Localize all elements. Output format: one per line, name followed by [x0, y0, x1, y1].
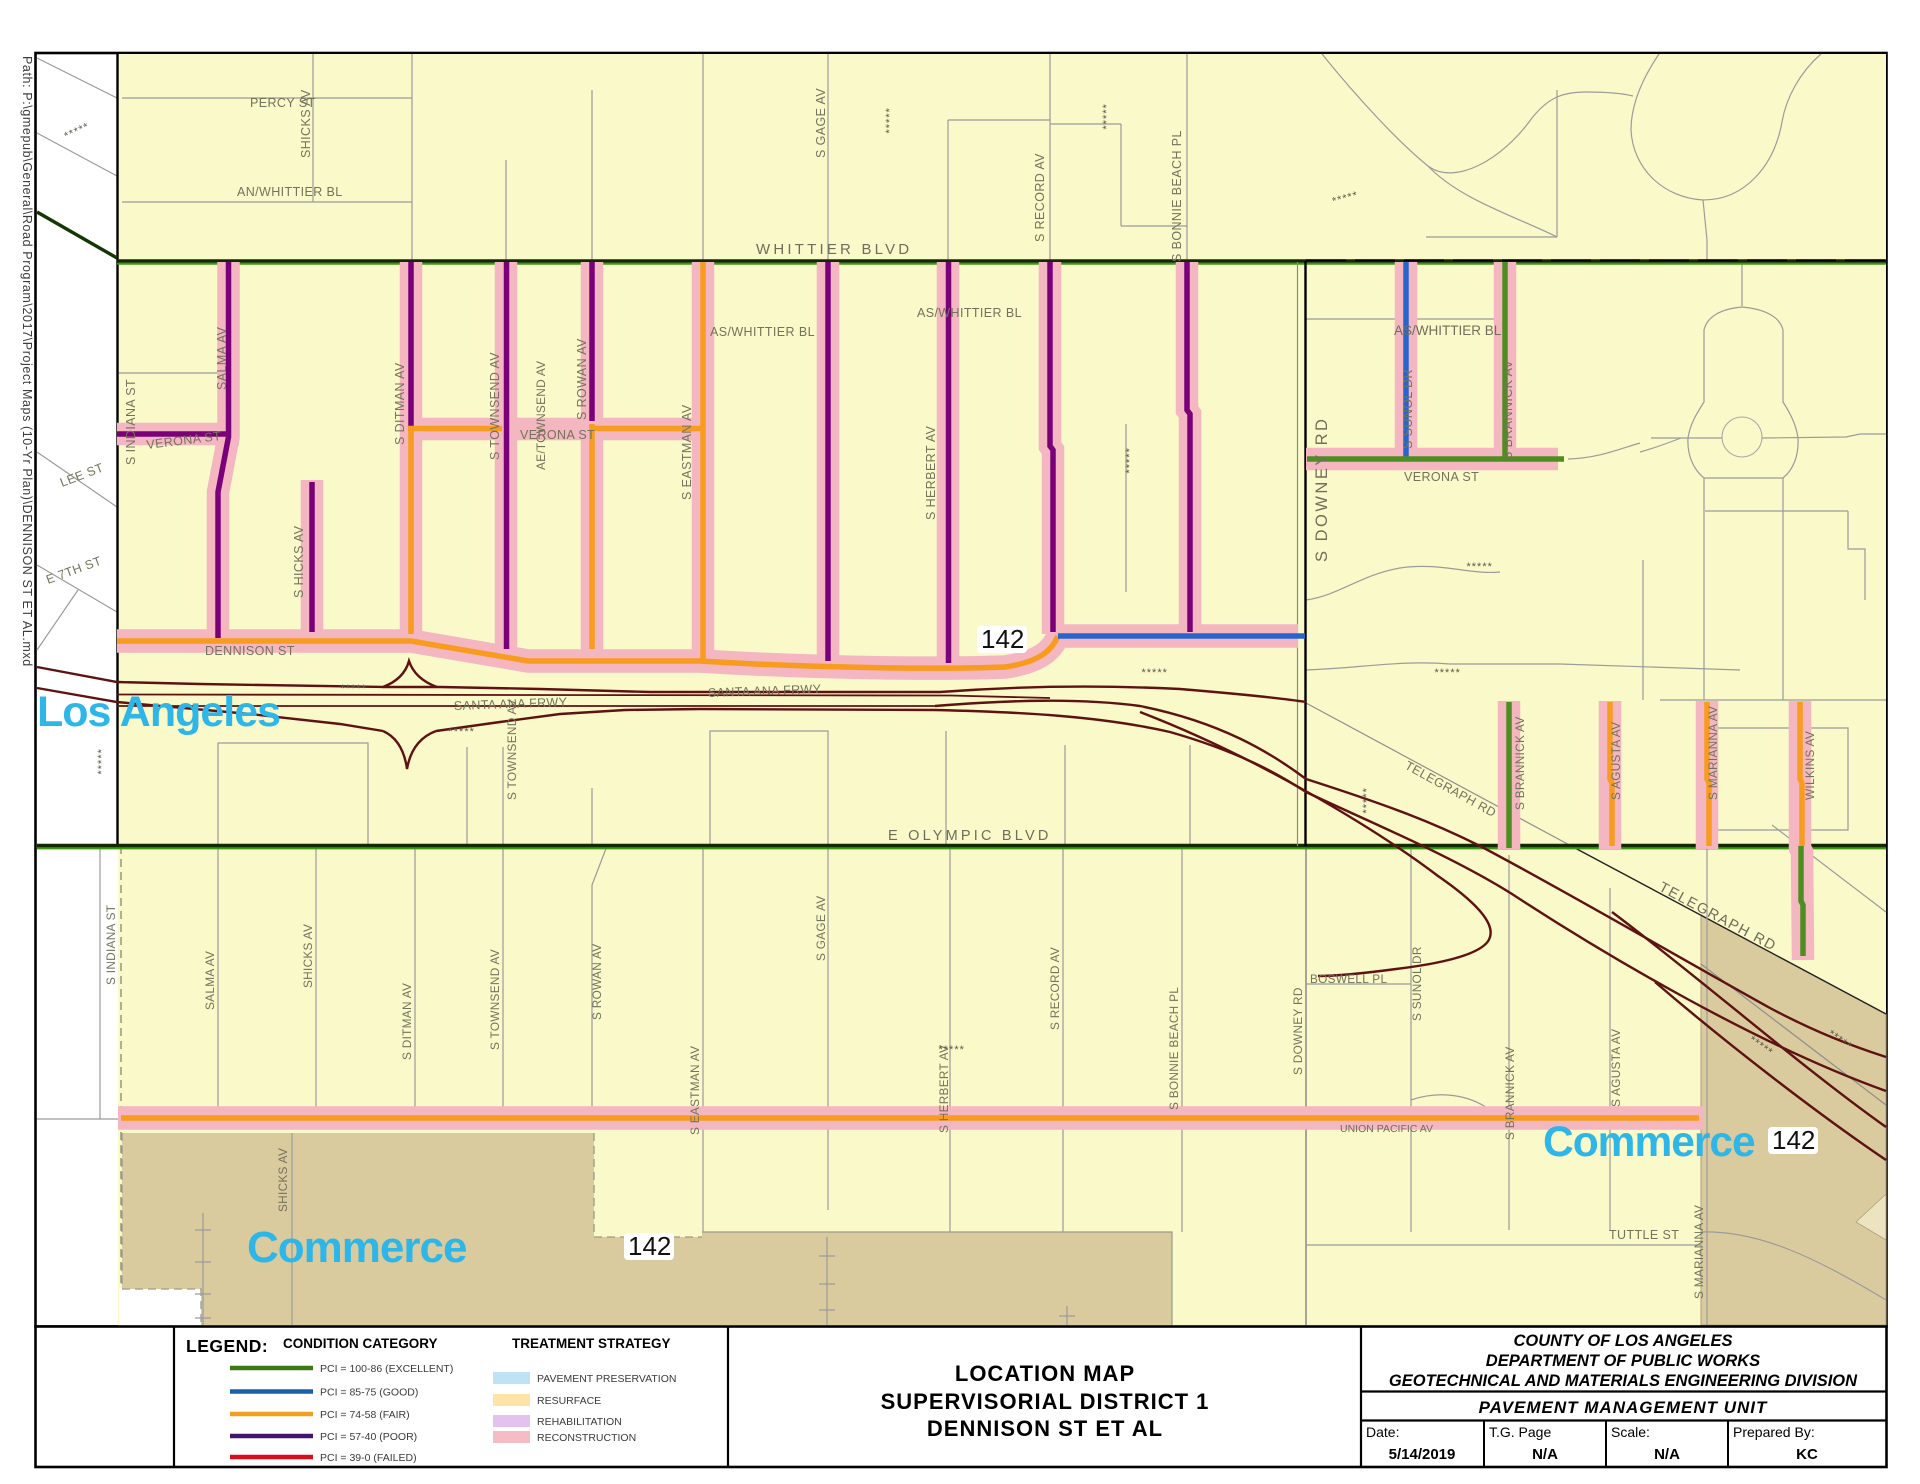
svg-text:Los Angeles: Los Angeles: [37, 688, 280, 736]
svg-text:PCI = 74-58 (FAIR): PCI = 74-58 (FAIR): [320, 1409, 410, 1421]
svg-text:N/A: N/A: [1654, 1446, 1680, 1463]
svg-text:BOSWELL PL: BOSWELL PL: [1310, 972, 1387, 986]
svg-text:S BONNIE BEACH PL: S BONNIE BEACH PL: [1170, 130, 1184, 262]
svg-text:S HERBERT AV: S HERBERT AV: [937, 1045, 951, 1133]
svg-text:S SUNOL DR: S SUNOL DR: [1401, 369, 1415, 449]
svg-text:S DOWNEY RD: S DOWNEY RD: [1291, 987, 1305, 1075]
svg-text:S DITMAN AV: S DITMAN AV: [400, 983, 414, 1060]
svg-text:S INDIANA ST: S INDIANA ST: [104, 905, 118, 985]
svg-text:S AGUSTA AV: S AGUSTA AV: [1609, 1029, 1623, 1107]
svg-text:AN/WHITTIER BL: AN/WHITTIER BL: [237, 185, 343, 199]
svg-text:S BRANNICK AV: S BRANNICK AV: [1503, 1047, 1517, 1141]
svg-text:142: 142: [981, 624, 1024, 654]
svg-text:Prepared By:: Prepared By:: [1733, 1424, 1815, 1440]
svg-text:S AGUSTA AV: S AGUSTA AV: [1609, 722, 1623, 800]
svg-text:S TOWNSEND AV: S TOWNSEND AV: [505, 699, 519, 800]
svg-text:DENNISON ST ET AL: DENNISON ST ET AL: [927, 1416, 1163, 1441]
svg-text:S TOWNSEND AV: S TOWNSEND AV: [488, 352, 502, 460]
svg-text:RECONSTRUCTION: RECONSTRUCTION: [537, 1432, 636, 1444]
svg-text:N/A: N/A: [1532, 1446, 1558, 1463]
svg-text:AS/WHITTIER BL: AS/WHITTIER BL: [1394, 323, 1502, 338]
svg-text:SHICKS AV: SHICKS AV: [276, 1148, 290, 1212]
svg-text:S HICKS AV: S HICKS AV: [292, 525, 306, 598]
svg-text:LEGEND:: LEGEND:: [186, 1336, 268, 1356]
svg-text:UNION PACIFIC AV: UNION PACIFIC AV: [1340, 1123, 1433, 1135]
svg-text:S RECORD AV: S RECORD AV: [1048, 947, 1062, 1030]
svg-text:*****: *****: [1466, 561, 1492, 573]
svg-text:GEOTECHNICAL AND MATERIALS ENG: GEOTECHNICAL AND MATERIALS ENGINEERING D…: [1389, 1372, 1858, 1390]
svg-text:*****: *****: [1361, 788, 1373, 814]
svg-text:*****: *****: [340, 683, 366, 695]
svg-text:142: 142: [628, 1231, 671, 1261]
svg-text:PCI = 85-75 (GOOD): PCI = 85-75 (GOOD): [320, 1387, 418, 1399]
svg-text:S GAGE AV: S GAGE AV: [814, 896, 828, 961]
svg-text:PCI = 100-86 (EXCELLENT): PCI = 100-86 (EXCELLENT): [320, 1363, 453, 1375]
svg-text:*****: *****: [1141, 667, 1167, 679]
svg-text:S ROWAN AV: S ROWAN AV: [575, 338, 589, 420]
svg-text:E OLYMPIC BLVD: E OLYMPIC BLVD: [888, 828, 1052, 844]
svg-text:S BRANNICK AV: S BRANNICK AV: [1501, 360, 1515, 460]
svg-text:S INDIANA ST: S INDIANA ST: [124, 379, 138, 465]
svg-text:Date:: Date:: [1366, 1424, 1399, 1440]
svg-text:DEPARTMENT OF PUBLIC WORKS: DEPARTMENT OF PUBLIC WORKS: [1486, 1352, 1760, 1370]
svg-text:S EASTMAN AV: S EASTMAN AV: [680, 404, 694, 500]
svg-text:*****: *****: [884, 108, 896, 134]
svg-text:S DOWNEY RD: S DOWNEY RD: [1313, 417, 1331, 562]
svg-text:5/14/2019: 5/14/2019: [1389, 1446, 1456, 1463]
svg-text:S HERBERT AV: S HERBERT AV: [924, 425, 938, 520]
svg-text:*****: *****: [448, 726, 474, 738]
svg-text:*****: *****: [96, 749, 108, 775]
svg-text:TREATMENT STRATEGY: TREATMENT STRATEGY: [512, 1336, 671, 1351]
svg-text:S SUNOL DR: S SUNOL DR: [1410, 946, 1424, 1021]
svg-text:PAVEMENT PRESERVATION: PAVEMENT PRESERVATION: [537, 1373, 676, 1385]
svg-text:REHABILITATION: REHABILITATION: [537, 1416, 622, 1428]
svg-text:S BONNIE BEACH PL: S BONNIE BEACH PL: [1167, 987, 1181, 1110]
svg-text:142: 142: [1772, 1125, 1815, 1155]
svg-text:S GAGE AV: S GAGE AV: [814, 88, 828, 158]
svg-text:T.G. Page: T.G. Page: [1489, 1424, 1551, 1440]
svg-text:Commerce: Commerce: [1543, 1119, 1755, 1166]
svg-text:SALMA AV: SALMA AV: [215, 326, 229, 390]
svg-text:AS/WHITTIER BL: AS/WHITTIER BL: [917, 306, 1022, 320]
svg-text:S TOWNSEND AV: S TOWNSEND AV: [488, 949, 502, 1050]
svg-text:S ROWAN AV: S ROWAN AV: [590, 944, 604, 1020]
svg-text:SALMA AV: SALMA AV: [203, 951, 217, 1010]
svg-text:S BRANNICK AV: S BRANNICK AV: [1513, 717, 1527, 811]
svg-text:AS/WHITTIER BL: AS/WHITTIER BL: [710, 325, 815, 339]
svg-text:CONDITION CATEGORY: CONDITION CATEGORY: [283, 1336, 438, 1351]
svg-text:KC: KC: [1796, 1446, 1818, 1463]
svg-text:*****: *****: [938, 1044, 964, 1056]
svg-text:WILKINS AV: WILKINS AV: [1803, 731, 1817, 800]
svg-text:S RECORD AV: S RECORD AV: [1033, 153, 1047, 242]
svg-text:*****: *****: [1124, 448, 1136, 474]
svg-text:Path: P:\gmepub\General\Road P: Path: P:\gmepub\General\Road Program\201…: [20, 56, 34, 667]
svg-text:S MARIANNA AV: S MARIANNA AV: [1706, 706, 1720, 800]
svg-text:S MARIANNA AV: S MARIANNA AV: [1692, 1205, 1706, 1299]
svg-text:SUPERVISORIAL DISTRICT 1: SUPERVISORIAL DISTRICT 1: [881, 1389, 1210, 1414]
svg-text:RESURFACE: RESURFACE: [537, 1395, 601, 1407]
svg-text:*****: *****: [1101, 104, 1113, 130]
svg-text:SHICKS AV: SHICKS AV: [301, 924, 315, 988]
svg-text:S EASTMAN AV: S EASTMAN AV: [688, 1046, 702, 1135]
svg-text:S DITMAN AV: S DITMAN AV: [393, 362, 407, 445]
svg-text:*****: *****: [1434, 667, 1460, 679]
svg-text:Commerce: Commerce: [247, 1223, 466, 1272]
svg-text:Scale:: Scale:: [1611, 1424, 1650, 1440]
svg-text:PAVEMENT MANAGEMENT UNIT: PAVEMENT MANAGEMENT UNIT: [1479, 1398, 1768, 1417]
svg-text:WHITTIER BLVD: WHITTIER BLVD: [756, 241, 912, 258]
svg-text:VERONA ST: VERONA ST: [520, 428, 595, 442]
svg-text:AE/TOWNSEND AV: AE/TOWNSEND AV: [534, 361, 548, 470]
svg-text:PCI = 57-40 (POOR): PCI = 57-40 (POOR): [320, 1431, 417, 1443]
svg-text:PCI = 39-0 (FAILED): PCI = 39-0 (FAILED): [320, 1452, 417, 1464]
svg-text:DENNISON ST: DENNISON ST: [205, 644, 295, 658]
svg-text:COUNTY OF LOS ANGELES: COUNTY OF LOS ANGELES: [1513, 1332, 1732, 1350]
svg-text:SHICKS AV: SHICKS AV: [299, 89, 313, 158]
svg-text:LOCATION MAP: LOCATION MAP: [955, 1361, 1135, 1386]
svg-text:VERONA ST: VERONA ST: [1404, 470, 1479, 484]
svg-text:TUTTLE ST: TUTTLE ST: [1609, 1228, 1679, 1242]
